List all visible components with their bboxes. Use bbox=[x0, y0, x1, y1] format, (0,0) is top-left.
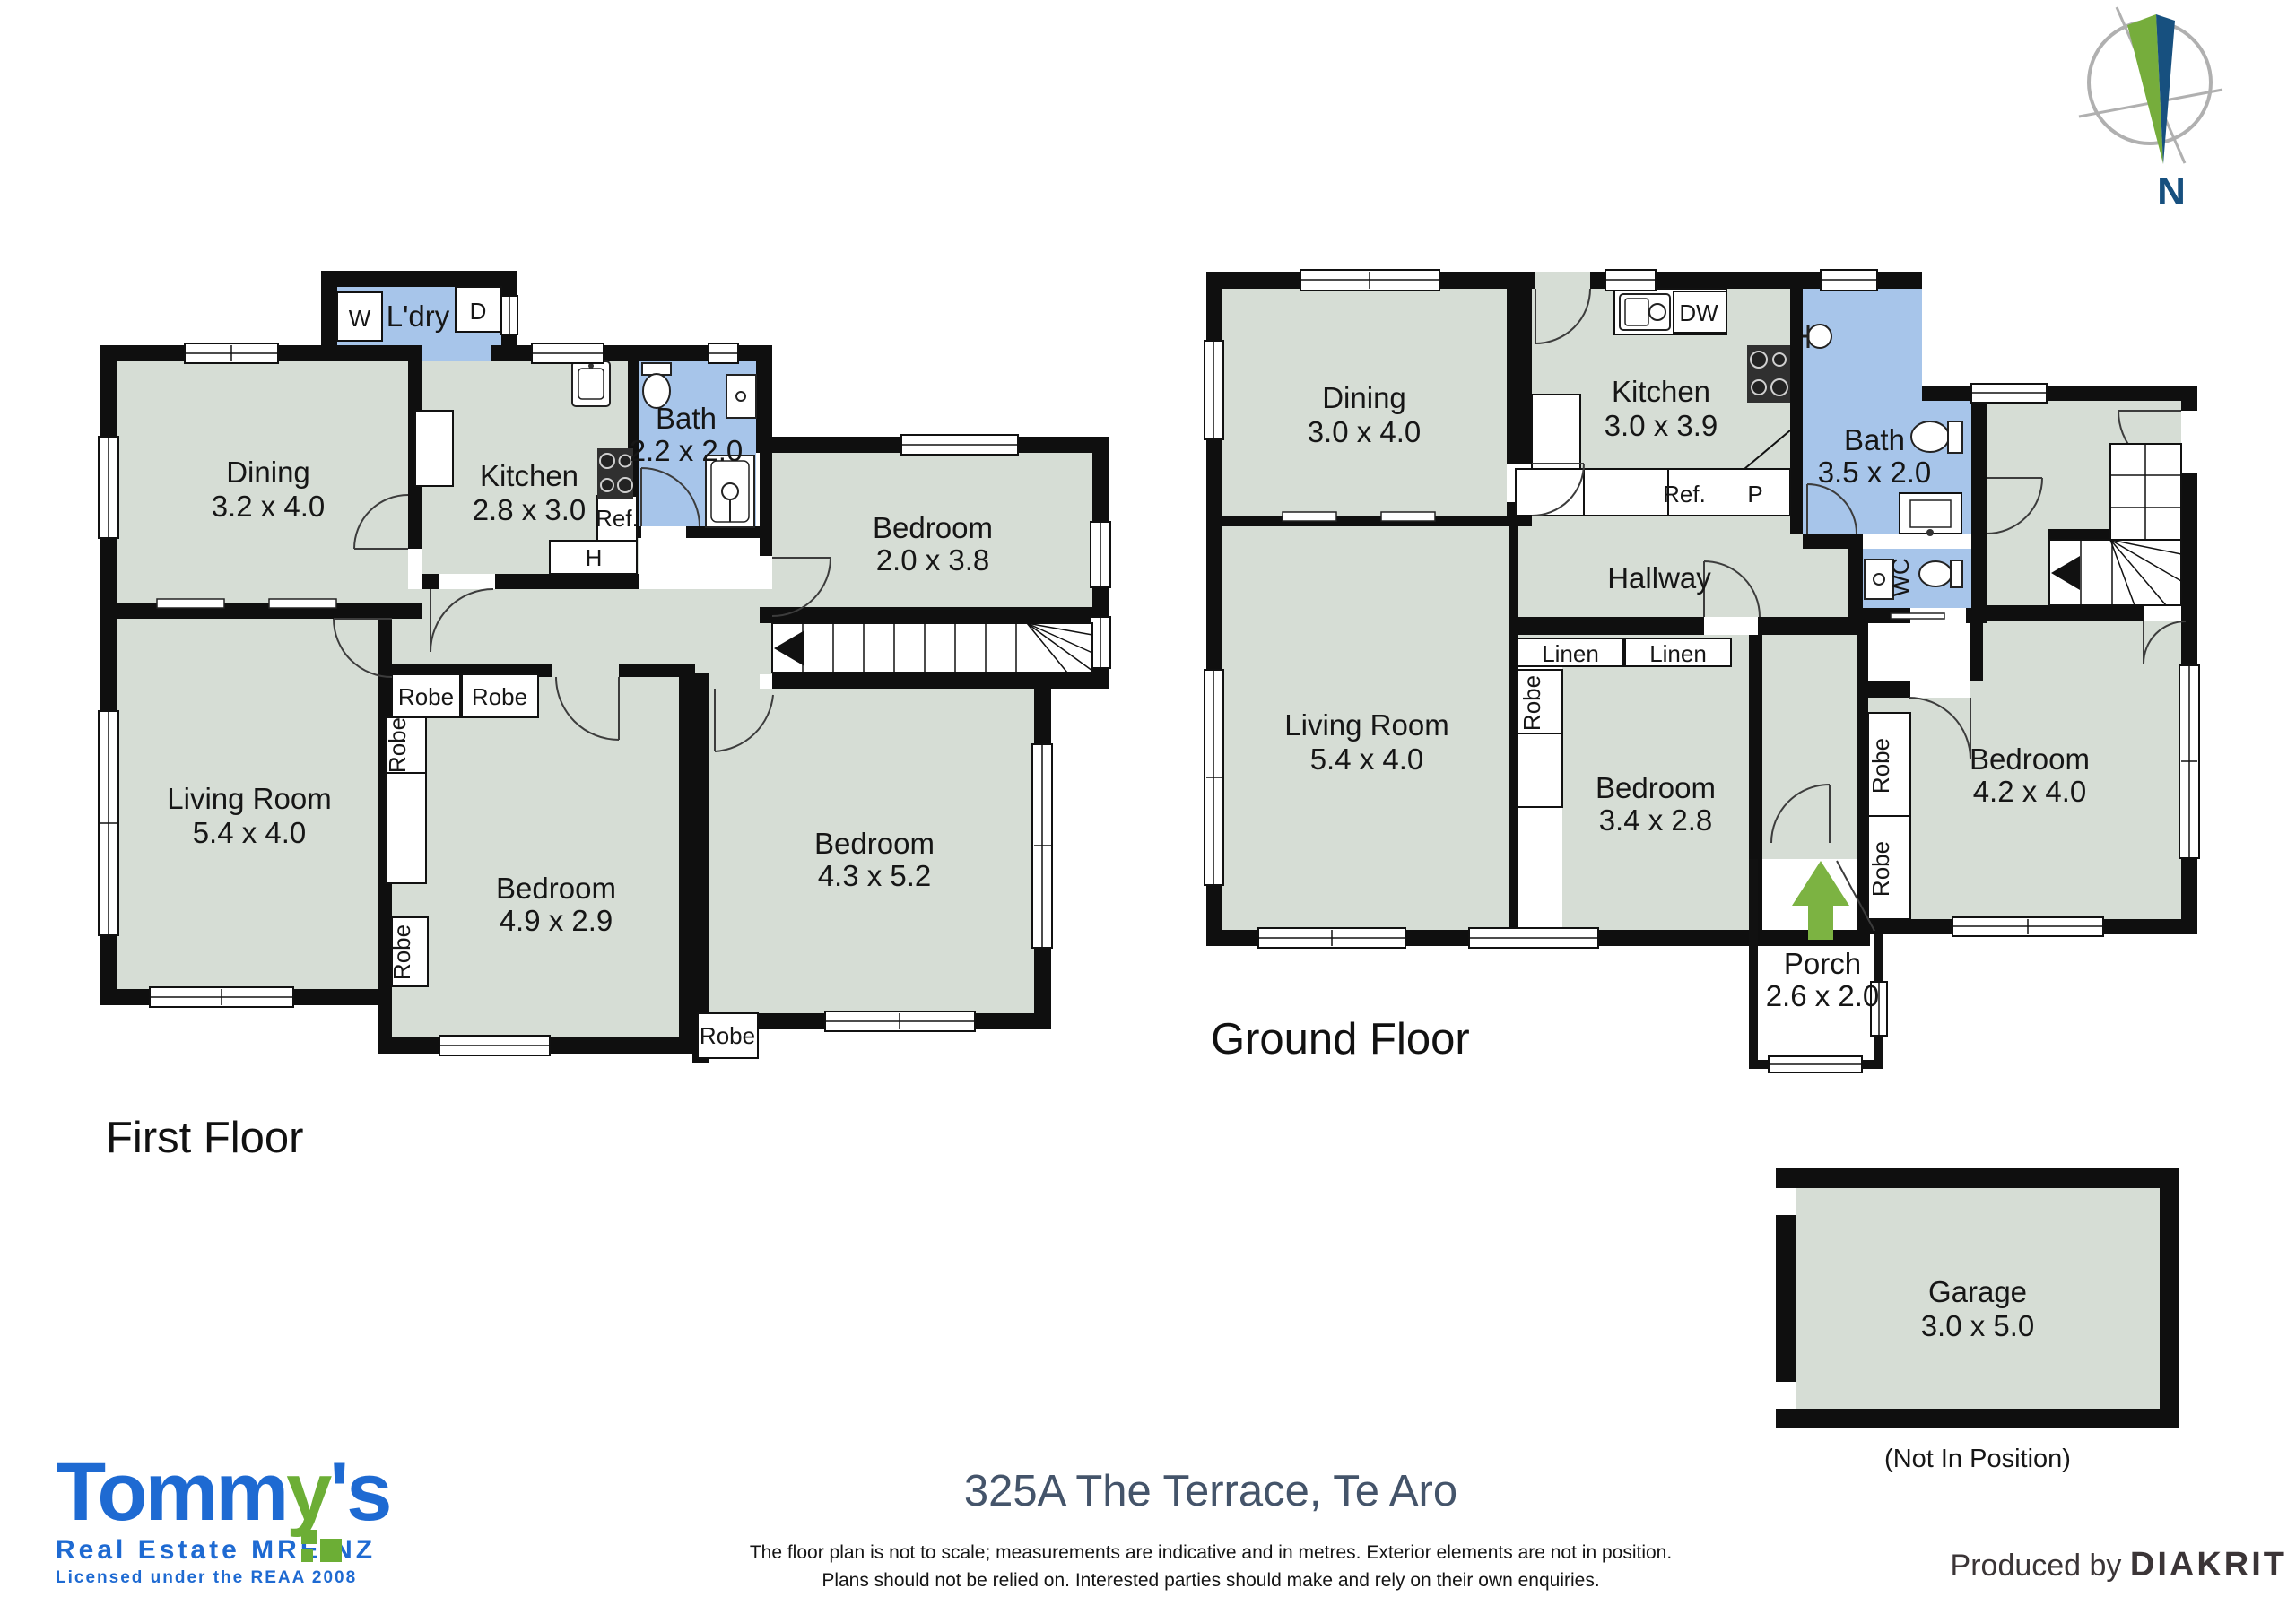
room-dims: 4.3 x 5.2 bbox=[818, 859, 932, 892]
room-label: Bedroom bbox=[814, 827, 935, 860]
hallway-label: Hallway bbox=[1607, 561, 1711, 595]
robe-label: Robe bbox=[1518, 675, 1545, 731]
wc-label: WC bbox=[1887, 558, 1914, 596]
dining-living-opening bbox=[1381, 512, 1435, 521]
diakrit-logo: DIAKRIT bbox=[2130, 1546, 2287, 1584]
compass-rose: N bbox=[2079, 7, 2222, 213]
compass-north-label: N bbox=[2157, 169, 2186, 213]
hot-water-label: H bbox=[586, 544, 603, 571]
room-dims: 2.8 x 3.0 bbox=[473, 493, 587, 526]
room-dims: 5.4 x 4.0 bbox=[1310, 742, 1424, 776]
first-floor-plan: Dining 3.2 x 4.0 Kitchen 2.8 x 3.0 L'dry… bbox=[99, 271, 1110, 1162]
robe-label: Robe bbox=[384, 717, 411, 773]
fridge-label: Ref. bbox=[1663, 481, 1706, 508]
room-label: Bedroom bbox=[496, 872, 616, 905]
dishwasher-label: DW bbox=[1679, 299, 1718, 326]
tommys-logo-subtitle: Real Estate MREINZ bbox=[56, 1535, 468, 1566]
room-dims: 2.6 x 2.0 bbox=[1766, 979, 1880, 1012]
room-label: Kitchen bbox=[1612, 375, 1710, 408]
disclaimer-text: The floor plan is not to scale; measurem… bbox=[717, 1539, 1704, 1594]
garage-caption: (Not In Position) bbox=[1884, 1445, 2071, 1473]
robe-label: Robe bbox=[1867, 841, 1894, 897]
floorplan-page: { "page": { "address": "325A The Terrace… bbox=[0, 0, 2296, 1623]
entry-arrow-icon bbox=[1792, 861, 1849, 940]
robe-label: Robe bbox=[700, 1022, 755, 1049]
room-dims: 5.4 x 4.0 bbox=[193, 816, 307, 849]
ground-floor-title: Ground Floor bbox=[1211, 1015, 1470, 1063]
room-label: Living Room bbox=[1284, 708, 1448, 742]
fridge-label: Ref. bbox=[596, 505, 639, 532]
room-label: L'dry bbox=[387, 299, 450, 333]
room-label: Bedroom bbox=[873, 511, 993, 544]
room-dims: 2.2 x 2.0 bbox=[630, 434, 744, 467]
dining-living-opening bbox=[1283, 512, 1336, 521]
dining-living-opening bbox=[269, 599, 336, 608]
tommys-key-icon bbox=[301, 1530, 346, 1571]
room-label: Bath bbox=[1844, 423, 1905, 456]
property-address: 325A The Terrace, Te Aro bbox=[762, 1466, 1659, 1516]
room-label: Kitchen bbox=[480, 459, 578, 492]
robe-label: Robe bbox=[398, 683, 454, 710]
bath-sink-icon bbox=[726, 375, 756, 418]
dining-living-opening bbox=[157, 599, 224, 608]
tommys-logo: Tommy's Real Estate MREINZ Licensed unde… bbox=[56, 1451, 468, 1588]
room-label: Bedroom bbox=[1970, 742, 2090, 776]
room-dims: 3.5 x 2.0 bbox=[1818, 456, 1932, 489]
tommys-logo-license: Licensed under the REAA 2008 bbox=[56, 1568, 468, 1588]
shower-head-icon bbox=[1808, 325, 1831, 348]
garage-plan: Garage 3.0 x 5.0 (Not In Position) bbox=[1776, 1168, 2179, 1473]
robe-label: Robe bbox=[1867, 738, 1894, 794]
room-label: Dining bbox=[226, 456, 310, 489]
room-dims: 3.0 x 5.0 bbox=[1921, 1309, 2035, 1342]
toilet-icon bbox=[1919, 561, 1952, 586]
room-label: Dining bbox=[1322, 381, 1406, 414]
room-label: Garage bbox=[1928, 1275, 2027, 1308]
ground-floor-plan: Dining 3.0 x 4.0 Kitchen 3.0 x 3.9 Bath … bbox=[1205, 270, 2199, 1072]
room-dims: 3.4 x 2.8 bbox=[1599, 803, 1713, 837]
room-dims: 3.0 x 3.9 bbox=[1605, 409, 1718, 442]
first-floor-stairs bbox=[772, 623, 1092, 673]
linen-label: Linen bbox=[1649, 640, 1707, 667]
produced-by: Produced by DIAKRIT bbox=[1839, 1546, 2287, 1584]
room-dims: 4.9 x 2.9 bbox=[500, 904, 613, 937]
room-dims: 3.2 x 4.0 bbox=[212, 490, 326, 523]
room-dims: 2.0 x 3.8 bbox=[876, 543, 990, 577]
floorplan-drawing: N bbox=[0, 0, 2296, 1623]
room-label: Porch bbox=[1784, 947, 1861, 980]
room-label: Living Room bbox=[167, 782, 331, 815]
room-label: Bath bbox=[656, 402, 717, 435]
toilet-icon bbox=[1911, 421, 1949, 452]
robe-label: Robe bbox=[388, 924, 415, 980]
dryer-label: D bbox=[470, 298, 487, 325]
pantry-label: P bbox=[1747, 481, 1762, 508]
room-dims: 3.0 x 4.0 bbox=[1308, 415, 1422, 448]
room-dims: 4.2 x 4.0 bbox=[1973, 775, 2087, 808]
linen-label: Linen bbox=[1542, 640, 1599, 667]
robe-label: Robe bbox=[472, 683, 527, 710]
first-floor-title: First Floor bbox=[106, 1114, 304, 1162]
tommys-logo-wordmark: Tommy's bbox=[56, 1451, 468, 1533]
room-label: Bedroom bbox=[1596, 771, 1716, 804]
washer-label: W bbox=[349, 305, 371, 332]
